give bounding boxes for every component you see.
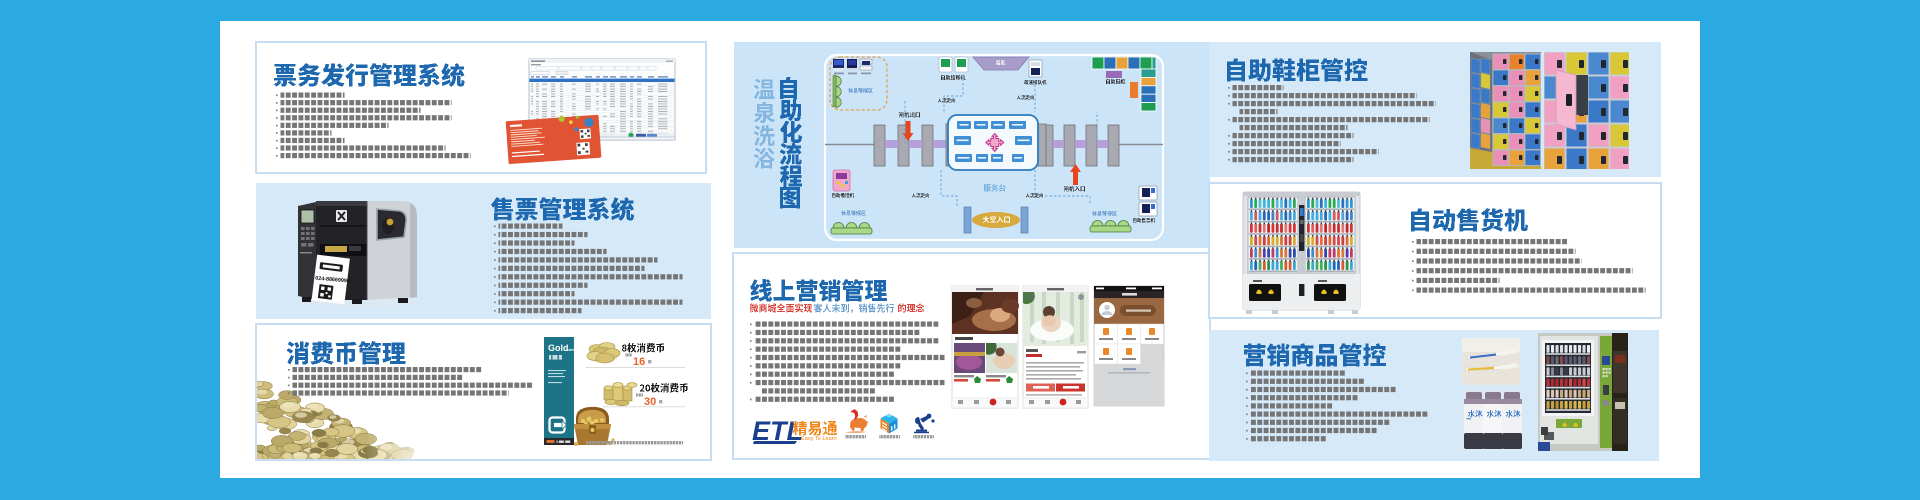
svg-text:16: 16: [633, 356, 645, 368]
svg-text:30: 30: [644, 396, 656, 408]
svg-text:Coins: Coins: [566, 348, 576, 352]
svg-text:Easy To Learn: Easy To Learn: [801, 436, 837, 442]
